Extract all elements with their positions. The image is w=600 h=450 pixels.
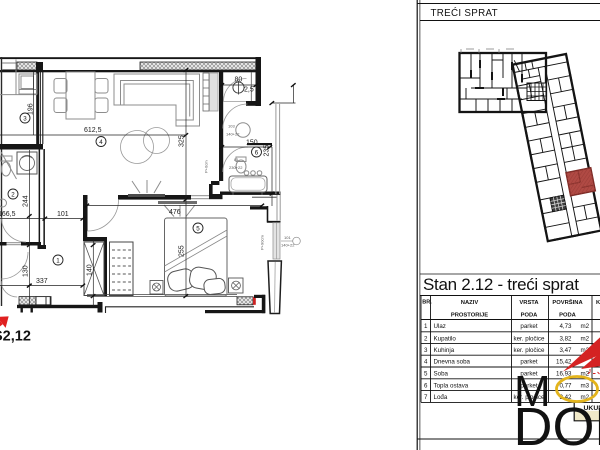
svg-text:PODA: PODA [559,313,577,319]
svg-text:2: 2 [11,191,15,198]
svg-text:1: 1 [424,323,428,330]
svg-text:196: 196 [28,103,35,115]
svg-text:244: 244 [23,195,30,207]
svg-text:101: 101 [57,211,69,218]
svg-text:3,47: 3,47 [559,347,572,354]
svg-text:3: 3 [424,347,428,354]
svg-text:5: 5 [424,371,428,378]
svg-text:1: 1 [56,257,60,264]
svg-text:m2: m2 [581,335,590,342]
svg-text:S2,12: S2,12 [0,329,31,345]
svg-text:Ulaz: Ulaz [434,323,446,330]
svg-text:VRSTA: VRSTA [519,300,539,306]
svg-text:3,82: 3,82 [559,335,572,342]
svg-text:PROSTORIJE: PROSTORIJE [451,313,488,319]
svg-text:476: 476 [169,209,181,216]
svg-text:DOM: DOM [514,397,600,450]
svg-text:325: 325 [179,135,186,147]
svg-text:Kuhinja: Kuhinja [434,347,455,354]
svg-text:Topla ostava: Topla ostava [434,382,469,389]
svg-text:POVRŠINA: POVRŠINA [552,298,583,306]
svg-text:15,42: 15,42 [556,359,572,366]
svg-text:KO: KO [596,300,600,306]
svg-text:140+22: 140+22 [281,243,295,248]
svg-text:255: 255 [179,245,186,257]
svg-text:337: 337 [36,278,48,285]
svg-text:6: 6 [424,382,428,389]
svg-text:3: 3 [23,115,27,122]
svg-text:235: 235 [264,145,271,157]
svg-text:4: 4 [99,139,103,146]
svg-text:ker. pločice: ker. pločice [514,347,546,354]
svg-text:166,5: 166,5 [0,211,16,218]
svg-text:TREĆI SPRAT: TREĆI SPRAT [431,8,498,19]
svg-text:101: 101 [284,235,291,240]
svg-text:Kupatilo: Kupatilo [434,335,457,342]
svg-text:5: 5 [196,225,200,232]
svg-text:130: 130 [23,265,30,277]
svg-text:2,5: 2,5 [244,87,254,94]
svg-text:140: 140 [87,264,94,276]
svg-text:230+22: 230+22 [229,165,243,170]
svg-text:612,5: 612,5 [84,127,102,134]
svg-text:140+22: 140+22 [226,132,240,137]
svg-text:103: 103 [228,124,235,129]
svg-text:PODA: PODA [521,313,539,319]
svg-text:Stan 2.12 - treći sprat: Stan 2.12 - treći sprat [423,275,579,294]
svg-text:0,77: 0,77 [559,382,572,389]
svg-text:m2: m2 [581,323,590,330]
svg-text:Soba: Soba [434,371,449,378]
svg-text:BR.: BR. [422,300,432,306]
svg-text:ker. pločice: ker. pločice [514,335,546,342]
svg-text:7: 7 [424,394,428,401]
svg-text:parket: parket [520,323,537,330]
svg-text:NAZIV: NAZIV [461,300,479,306]
svg-text:2: 2 [424,335,428,342]
svg-text:6: 6 [255,149,259,156]
svg-text:m3: m3 [581,382,590,389]
svg-text:81: 81 [234,157,239,162]
svg-text:P+0cm: P+0cm [204,160,209,173]
svg-text:4: 4 [424,359,428,366]
svg-text:80: 80 [235,77,243,84]
svg-text:4,73: 4,73 [559,323,572,330]
svg-text:Lođa: Lođa [434,394,448,401]
svg-text:Dnevna soba: Dnevna soba [434,359,471,366]
svg-text:P+90cm: P+90cm [260,235,265,250]
svg-text:parket: parket [520,359,537,366]
svg-text:150: 150 [246,140,258,147]
